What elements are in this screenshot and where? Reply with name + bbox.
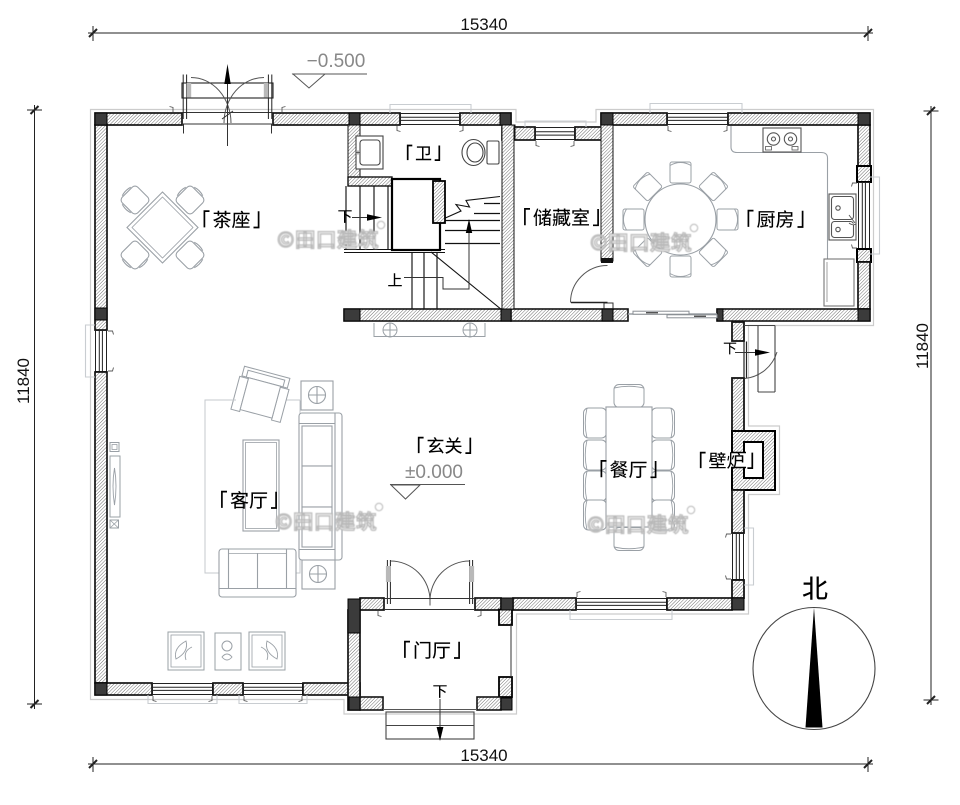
svg-text:±0.000: ±0.000 xyxy=(405,462,463,483)
svg-text:15340: 15340 xyxy=(460,15,507,34)
svg-text:−0.500: −0.500 xyxy=(307,51,366,72)
svg-text:15340: 15340 xyxy=(460,746,507,765)
svg-text:11840: 11840 xyxy=(913,323,932,369)
svg-text:11840: 11840 xyxy=(14,358,33,404)
